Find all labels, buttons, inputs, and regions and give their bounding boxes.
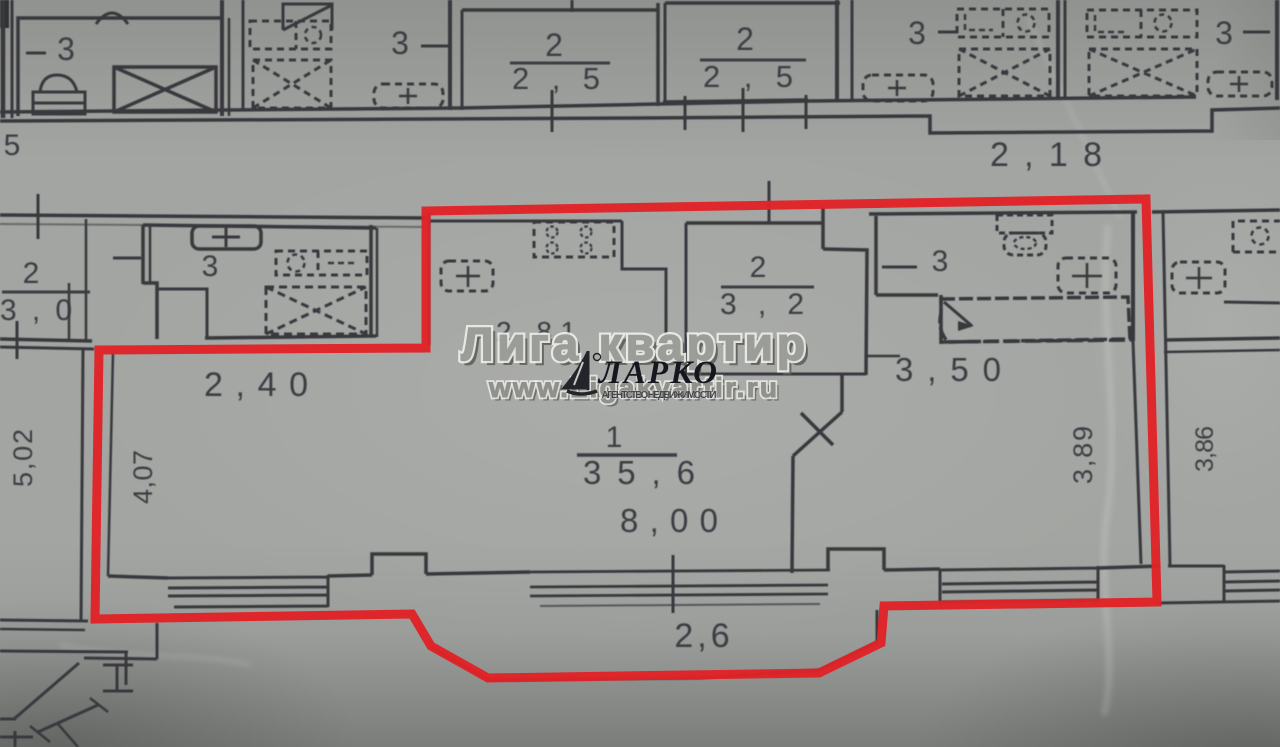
svg-text:3,86: 3,86: [1191, 426, 1219, 472]
svg-text:2,6: 2,6: [674, 617, 733, 655]
svg-text:3: 3: [1215, 15, 1233, 51]
svg-text:3,0: 3,0: [0, 294, 72, 327]
svg-text:3: 3: [391, 25, 409, 61]
svg-text:3: 3: [202, 250, 219, 283]
svg-text:АГЕНТСТВО НЕДВИЖИМОСТИ: АГЕНТСТВО НЕДВИЖИМОСТИ: [602, 390, 717, 401]
svg-text:3,89: 3,89: [1068, 426, 1098, 484]
svg-text:ЛАРКО: ЛАРКО: [597, 355, 719, 391]
svg-text:2: 2: [736, 21, 754, 57]
svg-text:2: 2: [750, 251, 767, 284]
svg-text:2,5: 2,5: [512, 61, 600, 96]
svg-text:3,2: 3,2: [720, 288, 804, 321]
svg-text:5: 5: [4, 129, 21, 162]
svg-text:1: 1: [606, 421, 623, 454]
svg-text:5,02: 5,02: [8, 429, 38, 487]
svg-text:3: 3: [908, 15, 926, 51]
svg-text:3: 3: [932, 245, 949, 278]
svg-text:2: 2: [545, 27, 563, 63]
svg-text:2: 2: [23, 257, 40, 290]
svg-text:4,07: 4,07: [128, 450, 158, 504]
svg-text:2,5: 2,5: [703, 59, 793, 94]
svg-text:3: 3: [57, 31, 75, 67]
